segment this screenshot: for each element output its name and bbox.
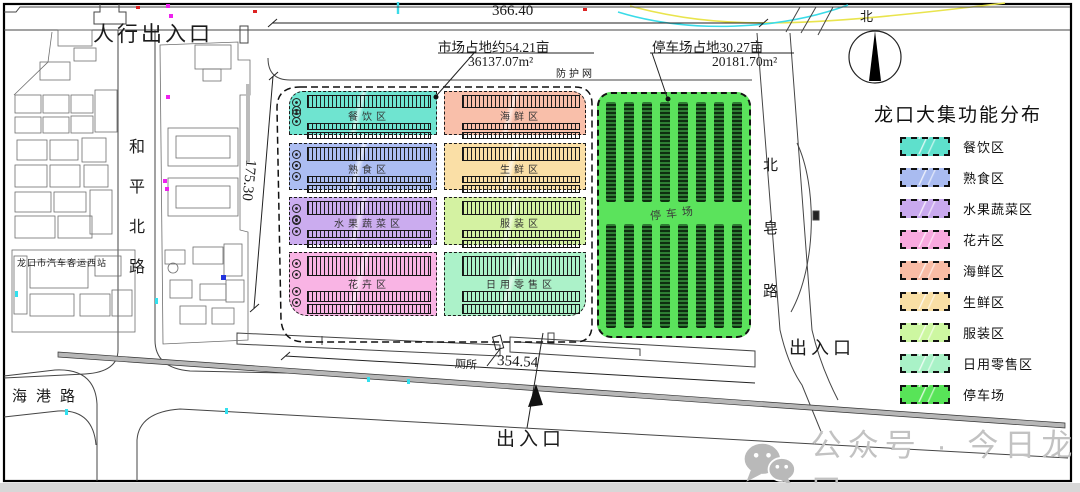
- legend-label: 海鲜区: [963, 261, 1005, 280]
- parking-rows: [606, 102, 742, 202]
- stall-row: [307, 256, 431, 276]
- zone-fruit-vegetable: 水果蔬菜区: [289, 197, 437, 245]
- parking-aisle: 停车场: [606, 202, 742, 224]
- legend-swatch: [900, 261, 950, 280]
- legend-swatch: [900, 168, 950, 187]
- stall-row: [307, 201, 431, 215]
- utility-line-cyan: [618, 5, 848, 26]
- stall-row: [462, 230, 580, 238]
- stall-row: [307, 123, 431, 130]
- fence-label: 防护网: [556, 65, 595, 80]
- legend-label: 水果蔬菜区: [963, 199, 1033, 218]
- zone-dining: 餐饮区: [289, 91, 437, 135]
- stall-row: [307, 147, 431, 161]
- stall-row: [307, 230, 431, 238]
- entrance-bottom-label: 出入口: [496, 424, 565, 451]
- zone-label: 服装区: [462, 215, 580, 230]
- legend-title: 龙口大集功能分布: [874, 100, 1068, 127]
- toilet-label: 厕所: [455, 355, 478, 372]
- legend-label: 生鲜区: [963, 292, 1005, 311]
- legend-item: 海鲜区: [900, 261, 1068, 280]
- zone-fresh-food: 生鲜区: [444, 143, 586, 190]
- parking-label: 停车场: [649, 202, 699, 224]
- dim-left-height: 175.30: [235, 159, 258, 222]
- bus-station-label: 龙口市汽车客运西站: [17, 256, 107, 269]
- legend-swatch: [900, 385, 950, 404]
- utility-line-yellow: [630, 3, 1005, 23]
- entrance-arrow: [528, 384, 543, 407]
- legend-swatch: [900, 323, 950, 342]
- stall-row: [307, 291, 431, 302]
- legend-label: 服装区: [963, 323, 1005, 342]
- stall-row: [462, 123, 580, 130]
- legend-swatch: [900, 292, 950, 311]
- dim-top-width: 366.40: [492, 3, 533, 20]
- zone-label: 花卉区: [307, 276, 431, 291]
- stall-row: [462, 256, 580, 276]
- legend-label: 熟食区: [963, 168, 1005, 187]
- north-compass: [849, 31, 901, 83]
- zone-label: 生鲜区: [462, 161, 580, 176]
- legend-item: 花卉区: [900, 230, 1068, 249]
- zone-parking: 停车场: [597, 92, 751, 338]
- zone-flower: 花卉区: [289, 252, 437, 316]
- legend-label: 日用零售区: [963, 354, 1033, 373]
- legend-item: 生鲜区: [900, 292, 1068, 311]
- parking-area-m2: 20181.70m²: [712, 54, 777, 70]
- legend-swatch: [900, 230, 950, 249]
- zone-clothing: 服装区: [444, 197, 586, 245]
- legend-swatch: [900, 199, 950, 218]
- stall-row: [462, 304, 580, 315]
- market-area-m2: 36137.07m²: [468, 54, 533, 70]
- north-label: 北: [860, 6, 873, 25]
- stall-row: [307, 304, 431, 315]
- pedestrian-entrance-label: 人行出入口: [93, 18, 213, 48]
- stall-row: [462, 95, 580, 108]
- market-area-label: 市场占地约54.21亩: [438, 36, 549, 56]
- stall-markers: [292, 257, 304, 281]
- zone-cooked-food: 熟食区: [289, 143, 437, 190]
- zone-label: 海鲜区: [462, 108, 580, 123]
- watermark-text: 公众号 · 今日龙口: [811, 420, 1080, 492]
- road-east-label: 北皂路: [759, 157, 780, 346]
- legend-item: 水果蔬菜区: [900, 199, 1068, 218]
- legend-label: 花卉区: [963, 230, 1005, 249]
- legend-item: 日用零售区: [900, 354, 1068, 373]
- parking-rows: [606, 224, 742, 328]
- page-bottom-strip: [0, 483, 1080, 492]
- site-plan-drawing: 餐饮区 海鲜区 熟食区 生鲜区 水果蔬菜区: [0, 0, 1080, 492]
- stall-markers: [292, 159, 304, 183]
- legend-item: 餐饮区: [900, 137, 1068, 156]
- legend-item: 熟食区: [900, 168, 1068, 187]
- stall-row: [307, 185, 431, 192]
- zone-seafood: 海鲜区: [444, 91, 586, 135]
- stall-row: [462, 185, 580, 192]
- stall-row: [462, 147, 580, 161]
- legend-swatch: [900, 137, 950, 156]
- zone-daily-retail: 日用零售区: [444, 252, 586, 316]
- watermark: 公众号 · 今日龙口: [742, 420, 1080, 492]
- stall-row: [462, 240, 580, 248]
- legend-item: 停车场: [900, 385, 1068, 404]
- zone-label: 餐饮区: [307, 108, 431, 123]
- stall-row: [307, 95, 431, 108]
- zone-label: 日用零售区: [462, 276, 580, 291]
- zone-label: 水果蔬菜区: [307, 215, 431, 230]
- stall-row: [462, 176, 580, 183]
- legend-label: 餐饮区: [963, 137, 1005, 156]
- stall-row: [462, 291, 580, 302]
- stall-row: [307, 132, 431, 139]
- entrance-right-label: 出入口: [789, 334, 855, 360]
- stall-row: [307, 176, 431, 183]
- legend-label: 停车场: [963, 385, 1005, 404]
- stall-row: [462, 132, 580, 139]
- stall-row: [307, 240, 431, 248]
- stall-markers: [292, 104, 304, 128]
- road-west-label: 和平北路: [122, 138, 146, 298]
- legend: 龙口大集功能分布 餐饮区 熟食区 水果蔬菜区 花卉区 海鲜区 生鲜区 服装区 日…: [868, 100, 1068, 416]
- stall-row: [462, 201, 580, 215]
- dim-bottom-width: 354.54: [497, 353, 539, 372]
- stall-markers: [292, 285, 304, 309]
- zone-label: 熟食区: [307, 161, 431, 176]
- parking-area-label: 停车场占地30.27亩: [652, 36, 763, 56]
- road-south-label: 海港路: [12, 385, 84, 406]
- legend-item: 服装区: [900, 323, 1068, 342]
- stall-markers: [292, 214, 304, 238]
- legend-swatch: [900, 354, 950, 373]
